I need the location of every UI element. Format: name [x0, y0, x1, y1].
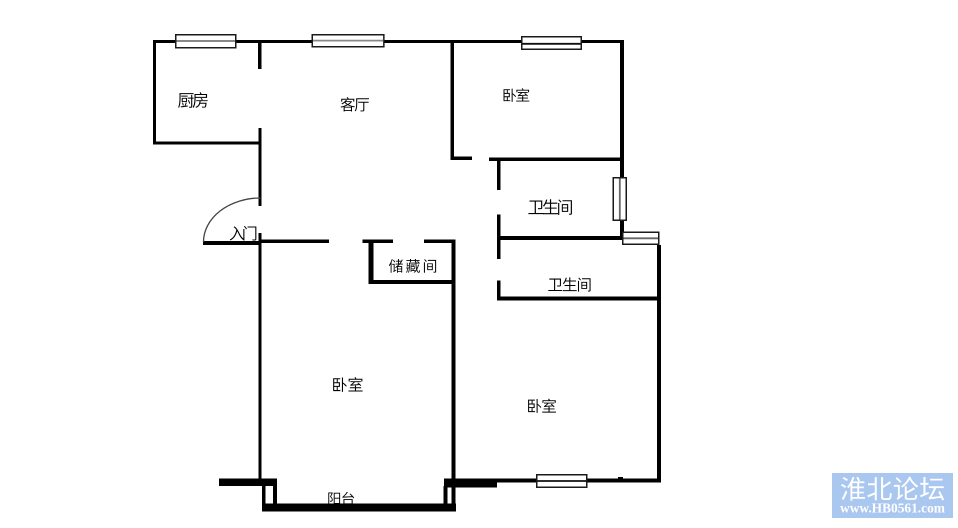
svg-text:www.HB0561.com: www.HB0561.com [840, 501, 945, 516]
